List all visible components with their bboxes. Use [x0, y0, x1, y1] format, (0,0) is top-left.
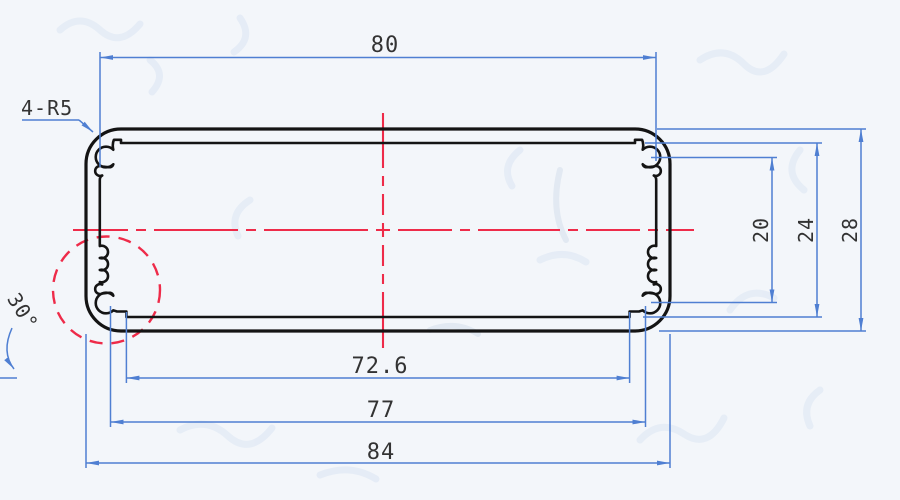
dim-label-boss-span-width: 77 — [367, 398, 396, 423]
corner-radius-leader — [22, 120, 93, 132]
dim-label-outer-height: 28 — [838, 217, 862, 243]
leader-arrow-line — [79, 120, 93, 132]
dim-label-boss-span-height: 20 — [749, 217, 773, 243]
dim-label-outer-width: 84 — [367, 440, 396, 465]
profile-inner-contour — [95, 140, 661, 317]
watermark-marks — [430, 170, 566, 334]
drawing-canvas: 80 4-R5 20 24 28 72.6 77 84 30° — [0, 0, 900, 500]
dim-label-serration-angle: 30° — [2, 289, 43, 335]
extrusion-profile-drawing: 80 4-R5 20 24 28 72.6 77 84 30° — [0, 0, 900, 500]
watermark-squiggles — [60, 18, 820, 479]
angle-arc — [7, 328, 14, 369]
dim-label-inner-height: 24 — [794, 217, 818, 243]
dimension-labels: 80 4-R5 20 24 28 72.6 77 84 30° — [2, 33, 862, 465]
dim-label-top-width: 80 — [371, 33, 400, 58]
centerlines — [73, 113, 694, 348]
dimensions — [0, 52, 866, 468]
dim-label-inner-bottom-width: 72.6 — [352, 354, 409, 379]
dim-label-corner-radius: 4-R5 — [21, 96, 73, 120]
angle-leader — [0, 328, 17, 378]
dim-top-width-80 — [100, 52, 656, 167]
